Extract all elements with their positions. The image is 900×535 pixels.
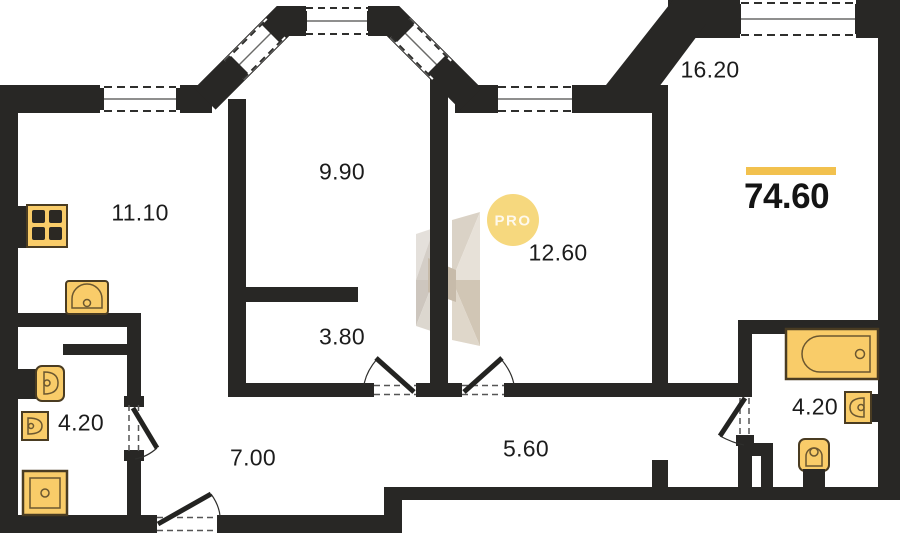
window-room-right [732,0,864,38]
window-room-middle [498,85,572,113]
bathtub-icon [786,329,878,379]
pro-watermark-badge: PRO [494,213,531,230]
walls [0,0,900,533]
room-label-storage: 3.80 [319,324,365,351]
room-label-bathroom-left: 4.20 [58,410,104,437]
toilet-right-icon [799,439,829,488]
room-label-hall-inner: 5.60 [503,436,549,463]
kitchen-sink-icon [66,281,108,314]
room-label-kitchen: 11.10 [111,200,168,227]
washbasin-left-icon [22,412,48,440]
stove-icon [18,205,67,248]
room-label-bathroom-right: 4.20 [792,394,838,421]
room-label-room-top: 9.90 [319,159,365,186]
washbasin-right-icon [845,392,878,423]
total-area-underline [746,167,836,175]
total-area-label: 74.60 [744,177,829,217]
window-kitchen [104,85,176,113]
floor-plan-drawing [0,0,900,535]
floor-plan: 11.10 9.90 12.60 16.20 3.80 4.20 7.00 5.… [0,0,900,535]
door-entrance [157,494,220,533]
toilet-left-icon [18,366,64,401]
room-label-hallway: 7.00 [230,445,276,472]
room-label-room-right: 16.20 [680,57,739,84]
shower-icon [23,471,67,515]
bay-window [224,6,452,80]
room-label-room-middle: 12.60 [528,240,587,267]
